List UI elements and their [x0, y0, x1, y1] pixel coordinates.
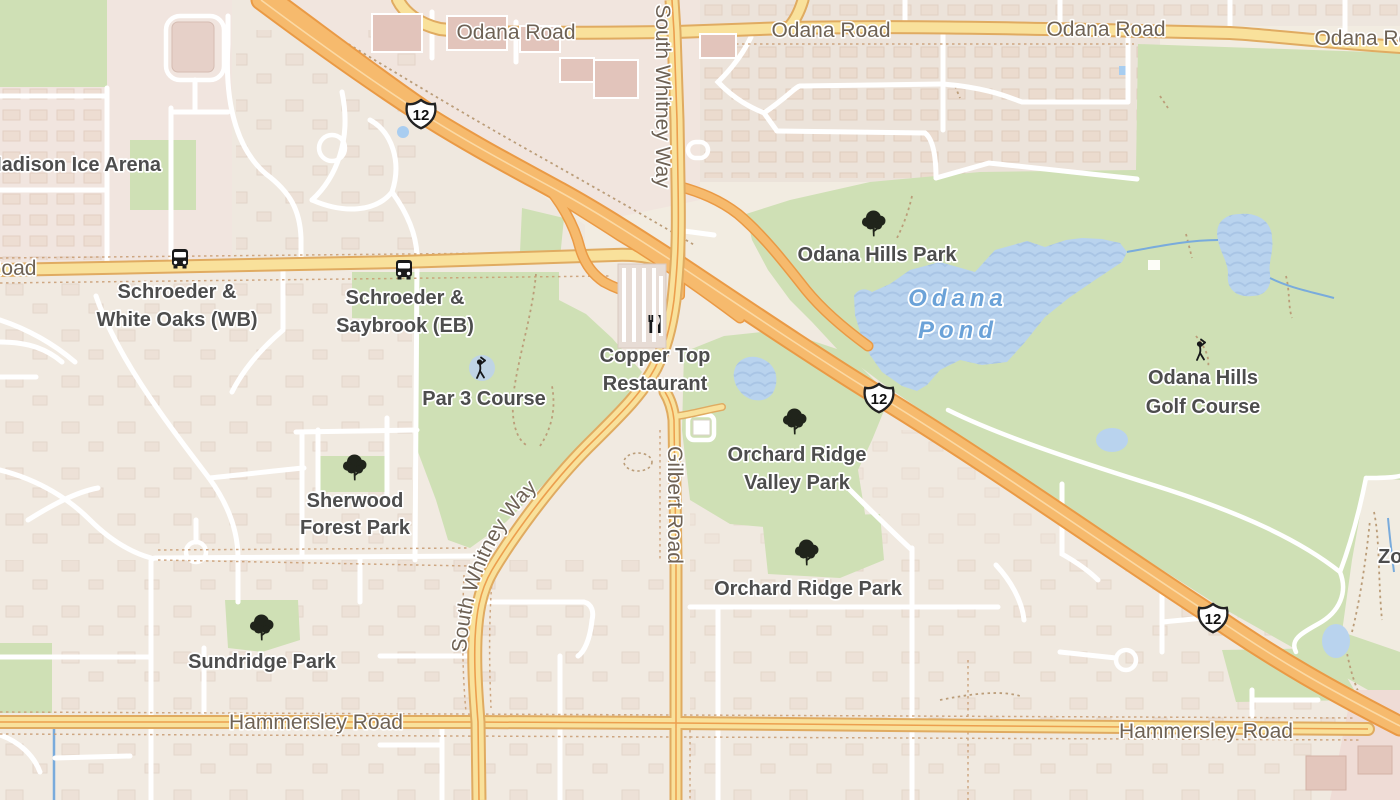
svg-text:White Oaks (WB): White Oaks (WB) — [96, 309, 257, 331]
svg-text:Odana Road: Odana Road — [456, 21, 575, 44]
svg-text:Copper Top: Copper Top — [600, 345, 711, 367]
svg-text:Orchard Ridge: Orchard Ridge — [728, 444, 867, 466]
svg-text:Schroeder &: Schroeder & — [346, 287, 465, 309]
svg-text:Zoo: Zoo — [1378, 546, 1400, 568]
svg-text:Sherwood: Sherwood — [307, 490, 404, 512]
svg-text:Forest Park: Forest Park — [300, 517, 411, 539]
svg-text:Odana Road: Odana Road — [1314, 27, 1400, 50]
svg-text:Odana Hills: Odana Hills — [1148, 367, 1258, 389]
svg-text:Hammersley Road: Hammersley Road — [1119, 720, 1293, 743]
svg-text:Schroeder &: Schroeder & — [118, 281, 237, 303]
svg-text:Odana Hills Park: Odana Hills Park — [798, 244, 958, 266]
svg-text:Sundridge Park: Sundridge Park — [188, 651, 337, 673]
svg-text:12: 12 — [871, 391, 888, 408]
svg-text:Orchard Ridge Park: Orchard Ridge Park — [714, 578, 903, 600]
svg-text:12: 12 — [413, 107, 430, 124]
svg-text:Schroeder Road: Schroeder Road — [0, 257, 36, 280]
svg-text:Hammersley Road: Hammersley Road — [229, 711, 403, 734]
svg-text:Valley Park: Valley Park — [744, 472, 851, 494]
svg-text:Odana Road: Odana Road — [1046, 18, 1165, 41]
svg-text:Restaurant: Restaurant — [603, 373, 708, 395]
svg-text:Pond: Pond — [918, 317, 998, 344]
svg-text:Par 3 Course: Par 3 Course — [422, 388, 545, 410]
svg-text:South Whitney Way: South Whitney Way — [651, 4, 674, 188]
svg-text:Golf Course: Golf Course — [1146, 396, 1260, 418]
svg-text:12: 12 — [1205, 611, 1222, 628]
svg-text:Odana: Odana — [908, 285, 1008, 312]
svg-text:Saybrook (EB): Saybrook (EB) — [336, 315, 474, 337]
svg-text:Madison Ice Arena: Madison Ice Arena — [0, 154, 162, 176]
svg-text:Odana Road: Odana Road — [771, 19, 890, 42]
svg-text:Gilbert Road: Gilbert Road — [663, 446, 686, 564]
